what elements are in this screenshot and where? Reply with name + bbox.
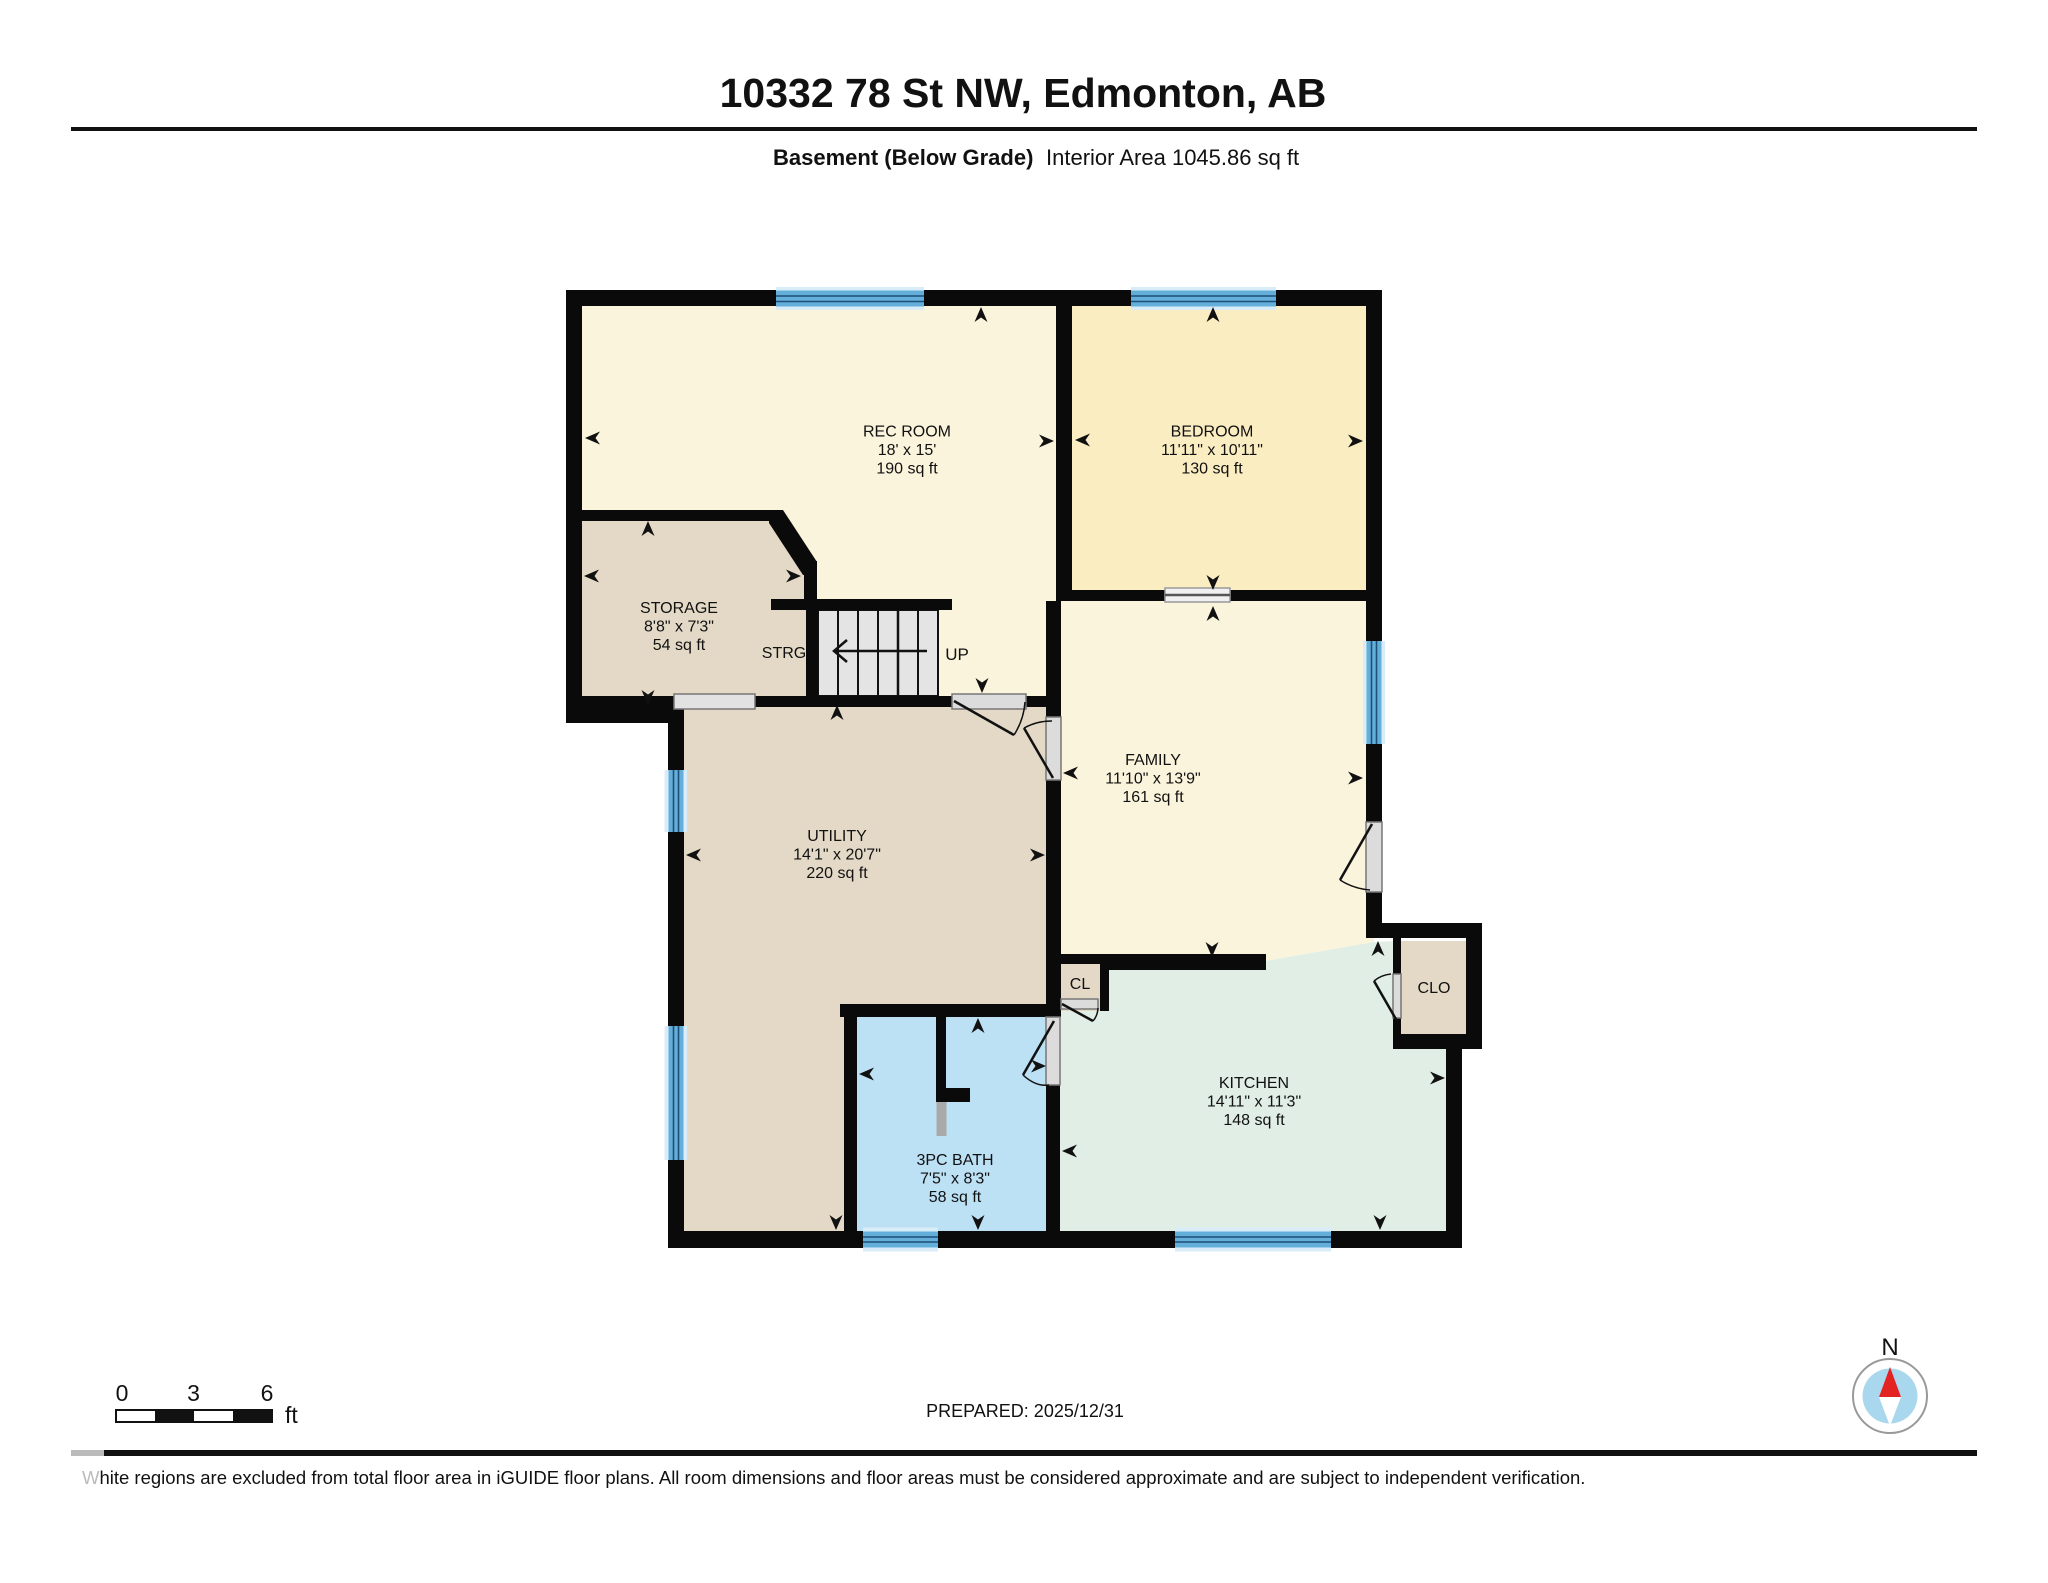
svg-text:Interior Area 1045.86 sq ft: Interior Area 1045.86 sq ft xyxy=(1046,145,1299,170)
svg-text:STORAGE: STORAGE xyxy=(640,600,718,617)
svg-text:PREPARED: 2025/12/31: PREPARED: 2025/12/31 xyxy=(926,1401,1124,1421)
svg-text:0: 0 xyxy=(116,1380,129,1406)
svg-text:FAMILY: FAMILY xyxy=(1125,752,1181,769)
svg-text:CLO: CLO xyxy=(1418,980,1451,997)
svg-text:STRG: STRG xyxy=(762,645,806,662)
svg-text:6: 6 xyxy=(261,1380,274,1406)
svg-text:161 sq ft: 161 sq ft xyxy=(1122,789,1184,806)
svg-text:7'5" x 8'3": 7'5" x 8'3" xyxy=(920,1170,990,1187)
svg-text:White regions are excluded fro: White regions are excluded from total fl… xyxy=(82,1467,1585,1488)
svg-text:11'11" x 10'11": 11'11" x 10'11" xyxy=(1161,442,1263,459)
svg-text:18' x 15': 18' x 15' xyxy=(878,442,937,459)
svg-text:54 sq ft: 54 sq ft xyxy=(653,637,706,654)
svg-text:Basement (Below Grade): Basement (Below Grade) xyxy=(773,145,1033,170)
svg-text:UP: UP xyxy=(945,645,969,664)
svg-text:130 sq ft: 130 sq ft xyxy=(1181,460,1243,477)
svg-text:BEDROOM: BEDROOM xyxy=(1171,424,1254,441)
svg-text:148 sq ft: 148 sq ft xyxy=(1223,1112,1285,1129)
svg-text:3: 3 xyxy=(187,1380,200,1406)
svg-text:190 sq ft: 190 sq ft xyxy=(876,460,938,477)
svg-text:14'1" x 20'7": 14'1" x 20'7" xyxy=(793,846,881,863)
svg-text:14'11" x 11'3": 14'11" x 11'3" xyxy=(1207,1093,1301,1110)
svg-text:11'10" x 13'9": 11'10" x 13'9" xyxy=(1105,770,1200,787)
svg-text:3PC BATH: 3PC BATH xyxy=(916,1152,993,1169)
svg-text:CL: CL xyxy=(1070,976,1091,993)
svg-text:KITCHEN: KITCHEN xyxy=(1219,1075,1289,1092)
svg-text:220 sq ft: 220 sq ft xyxy=(806,865,868,882)
svg-text:N: N xyxy=(1881,1334,1898,1361)
svg-text:ft: ft xyxy=(285,1402,298,1428)
svg-text:8'8" x 7'3": 8'8" x 7'3" xyxy=(644,618,714,635)
svg-text:REC ROOM: REC ROOM xyxy=(863,424,951,441)
svg-text:UTILITY: UTILITY xyxy=(807,828,867,845)
svg-text:58 sq ft: 58 sq ft xyxy=(929,1189,982,1206)
svg-text:10332 78 St NW, Edmonton, AB: 10332 78 St NW, Edmonton, AB xyxy=(720,70,1327,116)
